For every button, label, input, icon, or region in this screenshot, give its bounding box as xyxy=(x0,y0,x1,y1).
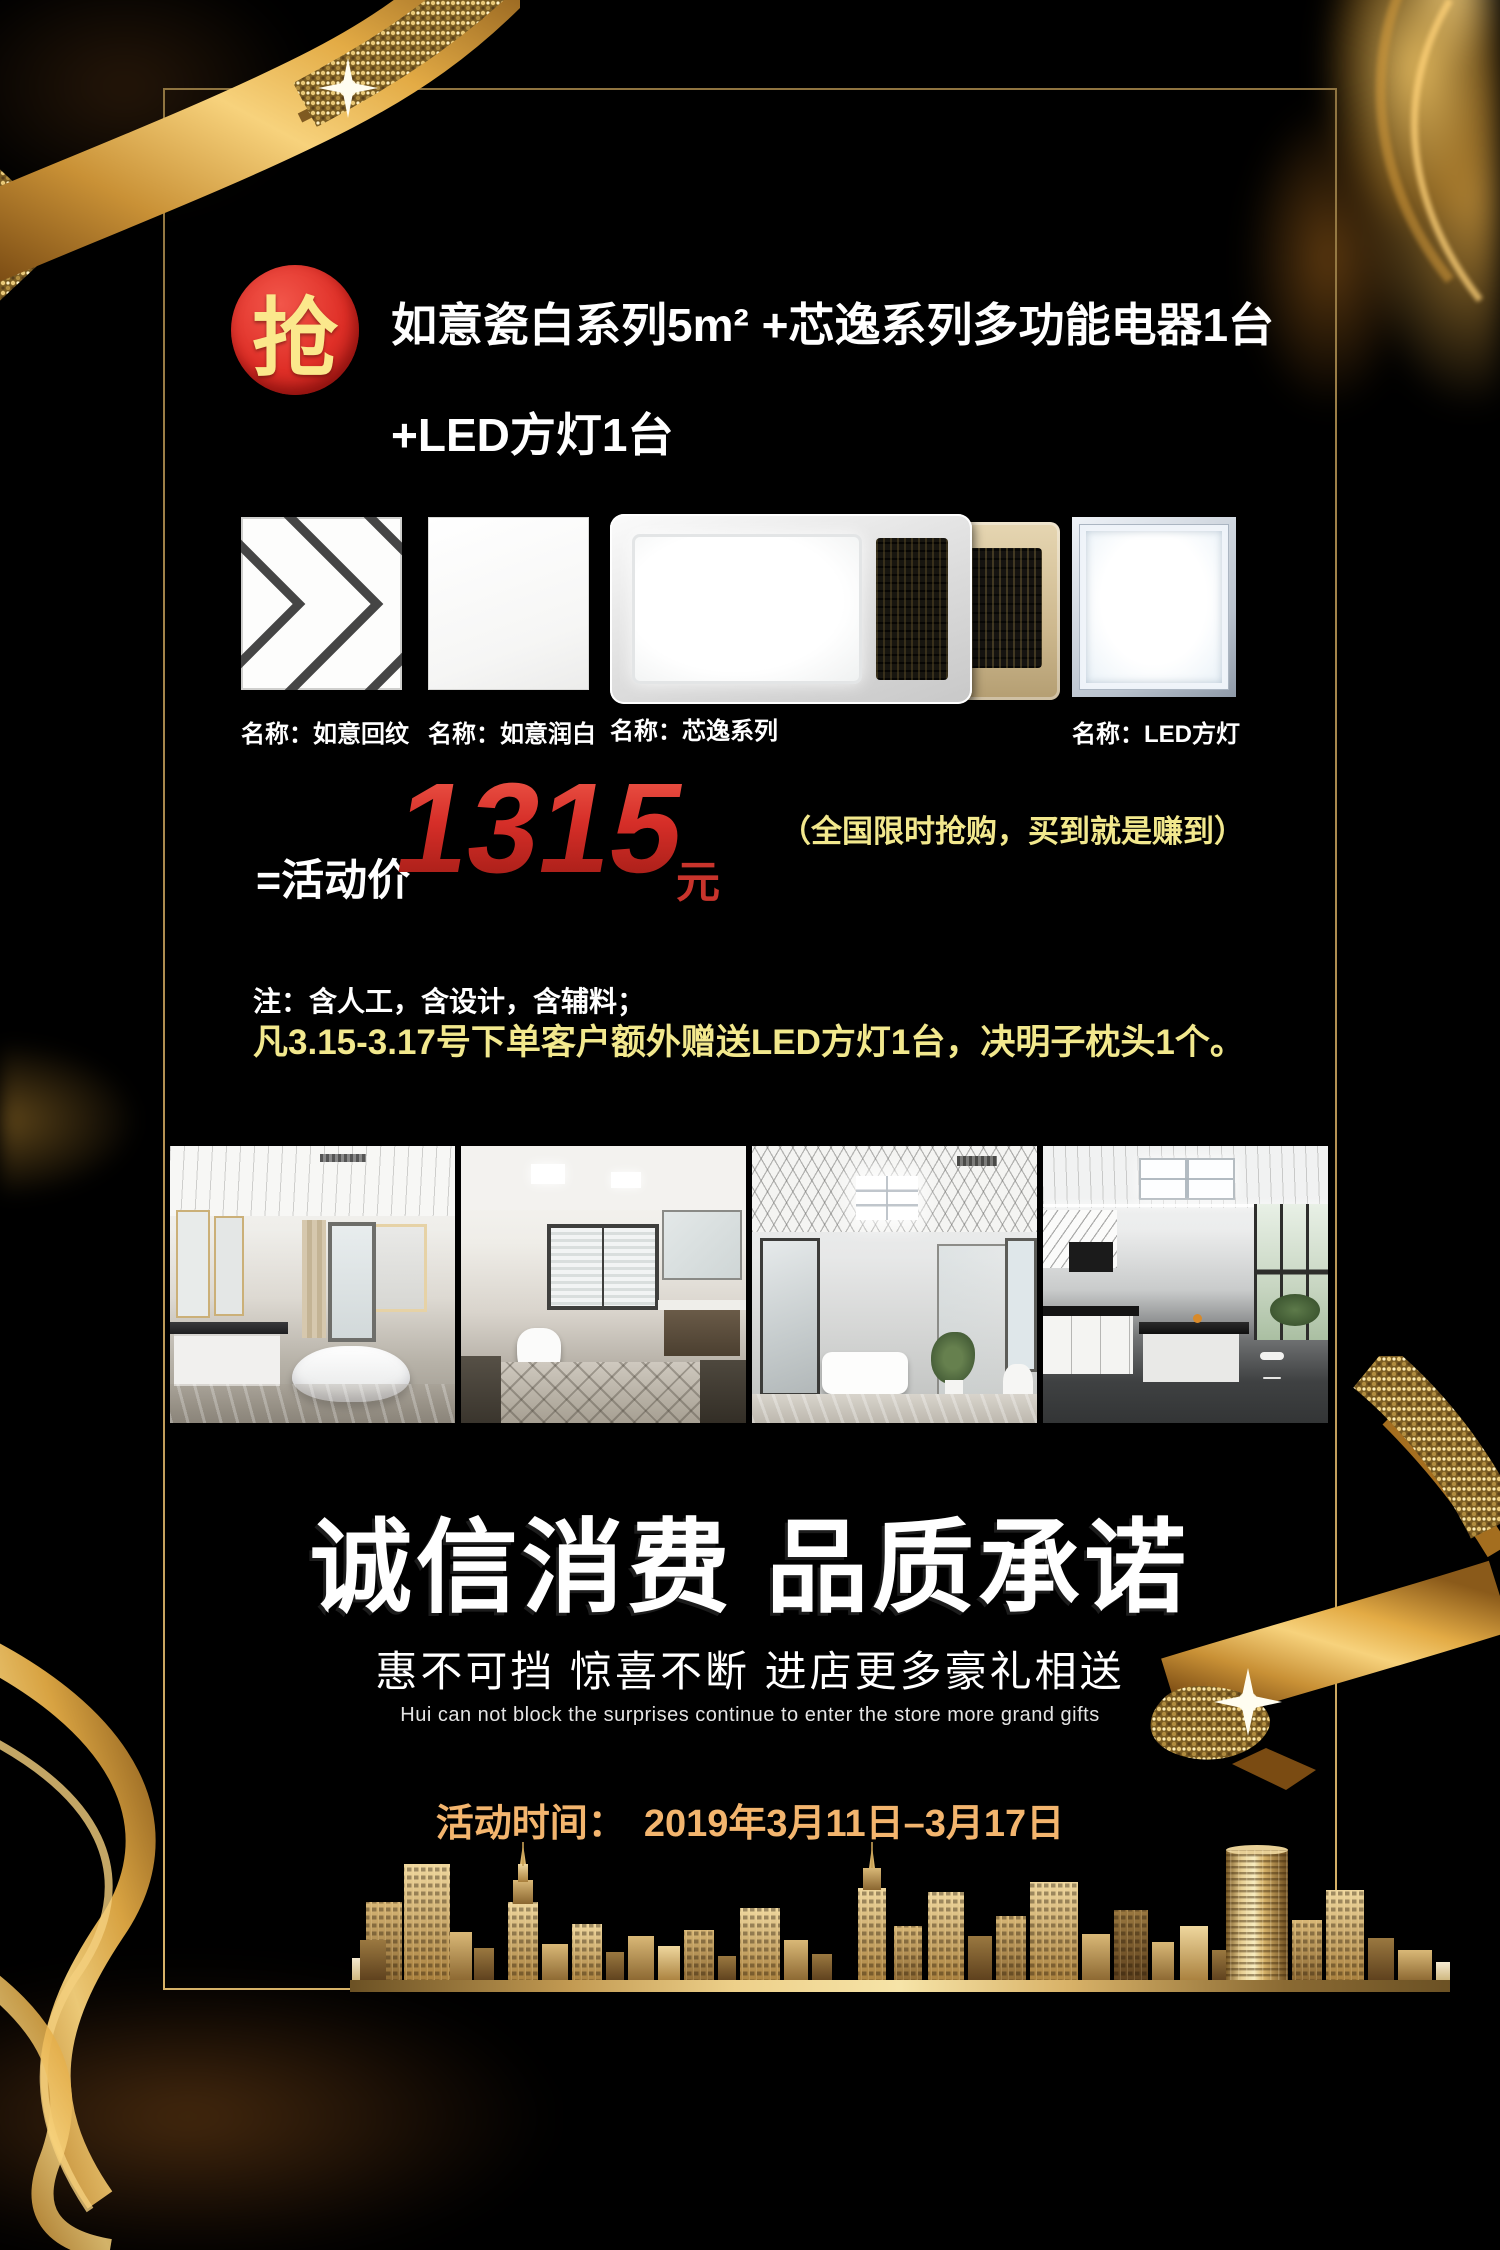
gold-silk-bottom-left xyxy=(0,1600,310,2250)
window xyxy=(328,1222,376,1342)
price-promo-note: （全国限时抢购，买到就是赚到） xyxy=(780,806,1245,851)
island-counter xyxy=(1139,1322,1249,1334)
base-cabinets xyxy=(1043,1316,1133,1374)
floor xyxy=(170,1384,455,1423)
offer-title-line2: +LED方灯1台 xyxy=(391,399,673,465)
heater-unit-art xyxy=(610,514,1060,706)
floor xyxy=(752,1394,1037,1423)
gold-ribbon-top-left xyxy=(0,0,520,340)
gallery-photo-bathroom-3 xyxy=(752,1146,1037,1423)
heater-grille xyxy=(964,548,1042,668)
ceiling xyxy=(170,1146,455,1216)
note-line2: 凡3.15-3.17号下单客户额外赠送LED方灯1台，决明子枕头1个。 xyxy=(253,1014,1245,1065)
led-panel-surface xyxy=(1086,531,1222,683)
gold-streak-left xyxy=(0,1040,140,1200)
ceiling-light xyxy=(531,1164,565,1184)
gallery-photo-bathroom-1 xyxy=(170,1146,455,1423)
ceiling-vent xyxy=(957,1156,997,1166)
white-panel-art xyxy=(428,517,589,690)
bathtub xyxy=(822,1352,908,1394)
diamond-tile-floor xyxy=(501,1362,700,1423)
curtain xyxy=(302,1220,326,1338)
gold-city-skyline xyxy=(350,1842,1450,1992)
wood-cabinet xyxy=(664,1310,740,1356)
fruit-bowl xyxy=(1193,1314,1202,1323)
heater-light-panel xyxy=(632,534,862,684)
window-with-blinds xyxy=(547,1224,659,1310)
range-hood xyxy=(1069,1242,1113,1272)
gold-ribbon-right xyxy=(1136,1356,1500,1796)
dark-slab xyxy=(700,1360,746,1423)
mirror xyxy=(176,1210,210,1318)
wall-art xyxy=(371,1224,427,1312)
gallery-photo-bathroom-2 xyxy=(461,1146,746,1423)
vanity-counter xyxy=(658,1300,746,1310)
mirror xyxy=(662,1210,742,1280)
offer-title-line1: 如意瓷白系列5m² +芯逸系列多功能电器1台 xyxy=(391,289,1274,355)
window xyxy=(1005,1238,1037,1372)
price-amount: 1315 xyxy=(387,765,694,893)
promo-poster: 抢 如意瓷白系列5m² +芯逸系列多功能电器1台 +LED方灯1台 名称：如意回… xyxy=(0,0,1500,2250)
event-time: 活动时间：2019年3月11日–3月17日 xyxy=(163,1792,1337,1847)
event-time-label: 活动时间： xyxy=(436,1803,626,1845)
counter xyxy=(1043,1306,1139,1316)
vanity-counter xyxy=(170,1322,288,1334)
price-unit: 元 xyxy=(676,846,720,910)
ceiling-light xyxy=(611,1172,641,1188)
led-panel-art xyxy=(1072,517,1236,697)
product-label: 名称：如意回纹 xyxy=(241,714,409,749)
ceiling-vent xyxy=(320,1154,366,1162)
mirror xyxy=(214,1216,244,1316)
chevron-panel-art xyxy=(241,517,402,690)
event-time-date: 2019年3月11日–3月17日 xyxy=(644,1803,1064,1845)
product-label: 名称：如意润白 xyxy=(428,714,596,749)
dark-slab xyxy=(461,1356,501,1423)
ceiling-light-panel xyxy=(1139,1158,1235,1200)
vanity-cabinet xyxy=(174,1334,280,1386)
plant xyxy=(1270,1294,1320,1326)
ceiling xyxy=(461,1146,746,1210)
heater-front-unit xyxy=(610,514,972,704)
heater-grille xyxy=(876,538,948,680)
product-label: 名称：芯逸系列 xyxy=(610,711,778,746)
tall-mirror xyxy=(760,1238,820,1396)
product-label: 名称：LED方灯 xyxy=(1072,714,1240,749)
ceiling-light-panel xyxy=(856,1176,918,1220)
